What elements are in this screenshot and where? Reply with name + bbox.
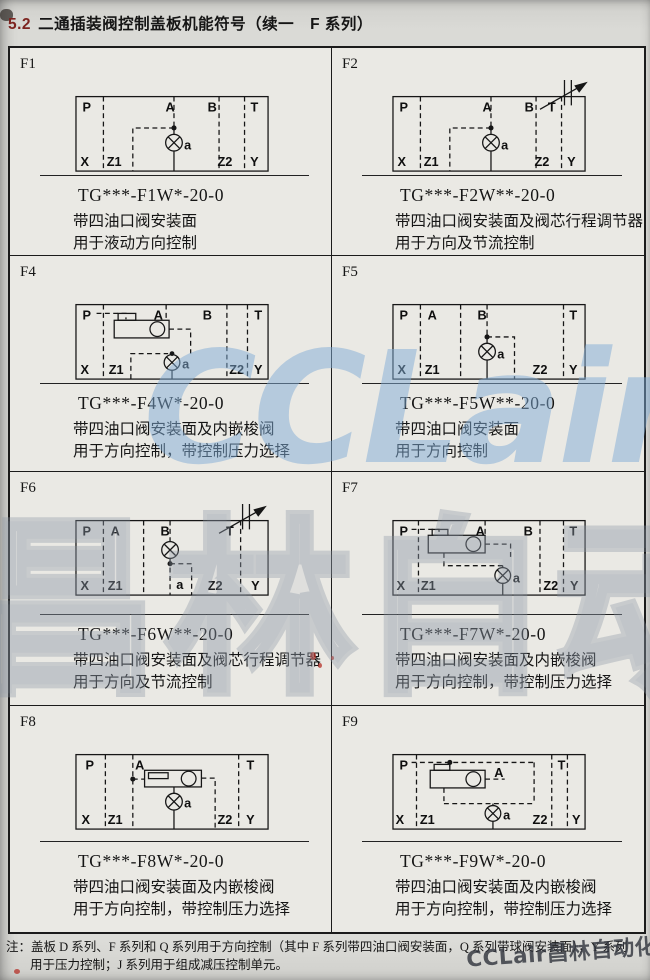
port-label: Z2 xyxy=(217,154,232,169)
port-label: B xyxy=(478,307,487,322)
cell-id: F9 xyxy=(342,713,638,731)
model-code: TG***-F1W*-20-0 xyxy=(20,185,325,206)
port-label: Z2 xyxy=(217,812,232,827)
port-label: P xyxy=(82,307,91,322)
model-code: TG***-F4W*-20-0 xyxy=(20,393,325,414)
description-line1: 带四油口阀安装面及阀芯行程调节器 xyxy=(20,650,325,672)
divider-line xyxy=(40,383,309,384)
port-label: B xyxy=(207,99,216,114)
red-pen-mark xyxy=(310,652,316,660)
description-line2: 用于方向及节流控制 xyxy=(342,233,638,255)
port-label: Z1 xyxy=(421,578,436,593)
port-label: T xyxy=(246,757,254,772)
cell-F7: F7 P A B xyxy=(332,472,644,706)
port-label: X xyxy=(80,578,89,593)
divider-line xyxy=(40,175,309,176)
cell-id: F2 xyxy=(342,55,638,73)
model-code: TG***-F9W*-20-0 xyxy=(342,851,638,872)
f7-schematic: P A B T X Z1 a Z2 Y xyxy=(342,501,638,599)
port-label: X xyxy=(398,362,407,377)
port-label: Y xyxy=(254,362,263,377)
port-label: P xyxy=(400,757,409,772)
description-line2: 用于方向控制，带控制压力选择 xyxy=(342,672,638,694)
cell-F5: F5 P A B T X Z1 a Z2 xyxy=(332,256,644,472)
f8-schematic: P A T X Z1 a Z2 Y xyxy=(20,735,325,833)
port-label: Z2 xyxy=(229,362,244,377)
port-label: P xyxy=(82,99,91,114)
port-label: Z1 xyxy=(107,578,122,593)
symbol-table: F1 P A B T X Z1 a Z2 xyxy=(8,46,646,934)
cell-F9: F9 P A xyxy=(332,706,644,932)
cell-id: F1 xyxy=(20,55,325,73)
footnote-label: 注： xyxy=(6,940,31,954)
port-label: Z1 xyxy=(424,154,439,169)
divider-line xyxy=(40,614,309,615)
hydraulic-diagram: P A B T X Z1 a Z2 Y xyxy=(387,501,593,599)
port-label: a xyxy=(176,577,184,592)
red-pen-mark xyxy=(331,656,334,660)
model-code: TG***-F6W**-20-0 xyxy=(20,624,325,645)
description-line1: 带四油口阀安装面及内嵌梭阀 xyxy=(342,650,638,672)
port-label: A xyxy=(165,99,174,114)
port-label: T xyxy=(254,307,262,322)
port-label: P xyxy=(82,523,91,538)
port-label: B xyxy=(525,99,534,114)
port-label: X xyxy=(81,812,90,827)
description-line1: 带四油口阀安装面及内嵌梭阀 xyxy=(20,877,325,899)
port-label: a xyxy=(184,796,192,811)
port-label: T xyxy=(548,99,556,114)
cell-F4: F4 P A B xyxy=(10,256,332,472)
port-label: a xyxy=(503,807,511,822)
port-label: T xyxy=(250,99,258,114)
port-label: a xyxy=(184,138,192,153)
port-label: X xyxy=(80,362,89,377)
port-label: T xyxy=(569,523,577,538)
port-label: A xyxy=(482,99,491,114)
description-line2: 用于方向控制，带控制压力选择 xyxy=(20,899,325,921)
port-label: Y xyxy=(250,154,259,169)
port-label: T xyxy=(558,757,566,772)
port-label: T xyxy=(569,307,577,322)
port-label: Z2 xyxy=(207,578,222,593)
port-label: A xyxy=(110,523,119,538)
red-pen-mark xyxy=(318,663,322,668)
f5-schematic: P A B T X Z1 a Z2 Y xyxy=(342,285,638,383)
cell-F6: F6 P A B T xyxy=(10,472,332,706)
port-label: Y xyxy=(251,578,260,593)
port-label: A xyxy=(135,757,144,772)
f6-schematic: P A B T X Z1 a Z2 Y xyxy=(20,501,325,599)
divider-line xyxy=(40,841,309,842)
cell-id: F6 xyxy=(20,479,325,497)
description-line1: 带四油口阀安装面及内嵌梭阀 xyxy=(342,877,638,899)
port-label: Y xyxy=(570,578,579,593)
port-label: Z1 xyxy=(107,812,122,827)
port-label: Z2 xyxy=(533,362,548,377)
description-line1: 带四油口阀安装面及内嵌梭阀 xyxy=(20,419,325,441)
pilot-line xyxy=(132,128,173,171)
f1-schematic: P A B T X Z1 a Z2 Y xyxy=(20,77,325,175)
divider-line xyxy=(362,614,622,615)
footnote-line1: 盖板 D 系列、F 系列和 Q 系列用于方向控制（其中 F 系列带四油口阀安装面… xyxy=(31,940,627,954)
description-line2: 用于方向及节流控制 xyxy=(20,672,325,694)
cell-id: F8 xyxy=(20,713,325,731)
divider-line xyxy=(362,383,622,384)
f2-schematic: P A B T X Z1 a Z2 Y xyxy=(342,77,638,175)
model-code: TG***-F7W*-20-0 xyxy=(342,624,638,645)
port-label: P xyxy=(400,99,409,114)
port-label: B xyxy=(202,307,211,322)
port-label: B xyxy=(160,523,169,538)
port-label: P xyxy=(400,307,409,322)
cell-id: F4 xyxy=(20,263,325,281)
footnote: 注：盖板 D 系列、F 系列和 Q 系列用于方向控制（其中 F 系列带四油口阀安… xyxy=(6,939,648,974)
port-label: A xyxy=(476,523,485,538)
port-label: A xyxy=(494,765,503,780)
cell-F2: F2 P A B T X xyxy=(332,48,644,256)
pilot-line xyxy=(130,354,167,379)
f4-schematic: P A B T X Z1 a Z2 Y xyxy=(20,285,325,383)
cell-F8: F8 P A T xyxy=(10,706,332,932)
port-label: X xyxy=(80,154,89,169)
port-label: Y xyxy=(569,362,578,377)
model-code: TG***-F2W**-20-0 xyxy=(342,185,638,206)
port-label: a xyxy=(513,570,521,585)
pilot-line xyxy=(201,778,215,829)
hydraulic-diagram: P A T X Z1 a Z2 Y xyxy=(70,735,276,833)
port-label: X xyxy=(396,812,405,827)
port-label: Z1 xyxy=(420,812,435,827)
shuttle-valve-icon xyxy=(430,764,485,788)
page-title: 5.2二通插装阀控制盖板机能符号（续一 F 系列） xyxy=(8,12,373,34)
port-label: Z2 xyxy=(543,578,558,593)
port-label: X xyxy=(397,578,406,593)
port-label: a xyxy=(501,138,509,153)
description-line2: 用于液动方向控制 xyxy=(20,233,325,255)
port-label: Y xyxy=(572,812,581,827)
model-code: TG***-F5W**-20-0 xyxy=(342,393,638,414)
port-label: Z1 xyxy=(108,362,123,377)
port-label: B xyxy=(524,523,533,538)
port-label: Y xyxy=(246,812,255,827)
port-label: X xyxy=(398,154,407,169)
divider-line xyxy=(362,841,622,842)
hydraulic-diagram: P A T X Z1 a Z2 Y xyxy=(387,735,593,833)
scanned-catalog-page: 5.2二通插装阀控制盖板机能符号（续一 F 系列） F1 P A B T xyxy=(0,0,650,980)
f9-schematic: P A T X Z1 a Z2 Y xyxy=(342,735,638,833)
description-line1: 带四油口阀安装面 xyxy=(342,419,638,441)
port-label: a xyxy=(182,356,190,371)
section-number: 5.2 xyxy=(8,16,31,33)
hydraulic-diagram: P A B T X Z1 a Z2 Y xyxy=(387,77,593,175)
description-line1: 带四油口阀安装面 xyxy=(20,211,325,233)
port-label: T xyxy=(225,523,233,538)
pilot-line xyxy=(450,128,491,171)
cell-F1: F1 P A B T X Z1 a Z2 xyxy=(10,48,332,256)
section-title: 二通插装阀控制盖板机能符号（续一 F 系列） xyxy=(38,16,373,33)
port-label: Z2 xyxy=(535,154,550,169)
port-label: A xyxy=(428,307,437,322)
port-label: a xyxy=(497,347,505,362)
shuttle-valve-icon xyxy=(144,770,201,787)
cell-id: F7 xyxy=(342,479,638,497)
port-label: Z1 xyxy=(106,154,121,169)
footnote-line2: 用于压力控制；J 系列用于组成减压控制单元。 xyxy=(6,957,648,975)
port-label: Z1 xyxy=(425,362,440,377)
hydraulic-diagram: P A B T X Z1 a Z2 Y xyxy=(70,77,276,175)
hydraulic-diagram: P A B T X Z1 a Z2 Y xyxy=(70,285,276,383)
description-line2: 用于方向控制 xyxy=(342,441,638,463)
hydraulic-diagram: P A B T X Z1 a Z2 Y xyxy=(387,285,593,383)
pilot-line xyxy=(444,553,503,566)
divider-line xyxy=(362,175,622,176)
red-pen-mark xyxy=(14,969,20,974)
valve-body xyxy=(393,305,585,379)
cell-id: F5 xyxy=(342,263,638,281)
description-line1: 带四油口阀安装面及阀芯行程调节器 xyxy=(342,211,638,233)
port-label: A xyxy=(153,307,162,322)
description-line2: 用于方向控制，带控制压力选择 xyxy=(20,441,325,463)
port-label: Z2 xyxy=(533,812,548,827)
description-line2: 用于方向控制，带控制压力选择 xyxy=(342,899,638,921)
hydraulic-diagram: P A B T X Z1 a Z2 Y xyxy=(70,501,276,599)
model-code: TG***-F8W*-20-0 xyxy=(20,851,325,872)
port-label: P xyxy=(400,523,409,538)
port-label: P xyxy=(85,757,94,772)
port-label: Y xyxy=(567,154,576,169)
